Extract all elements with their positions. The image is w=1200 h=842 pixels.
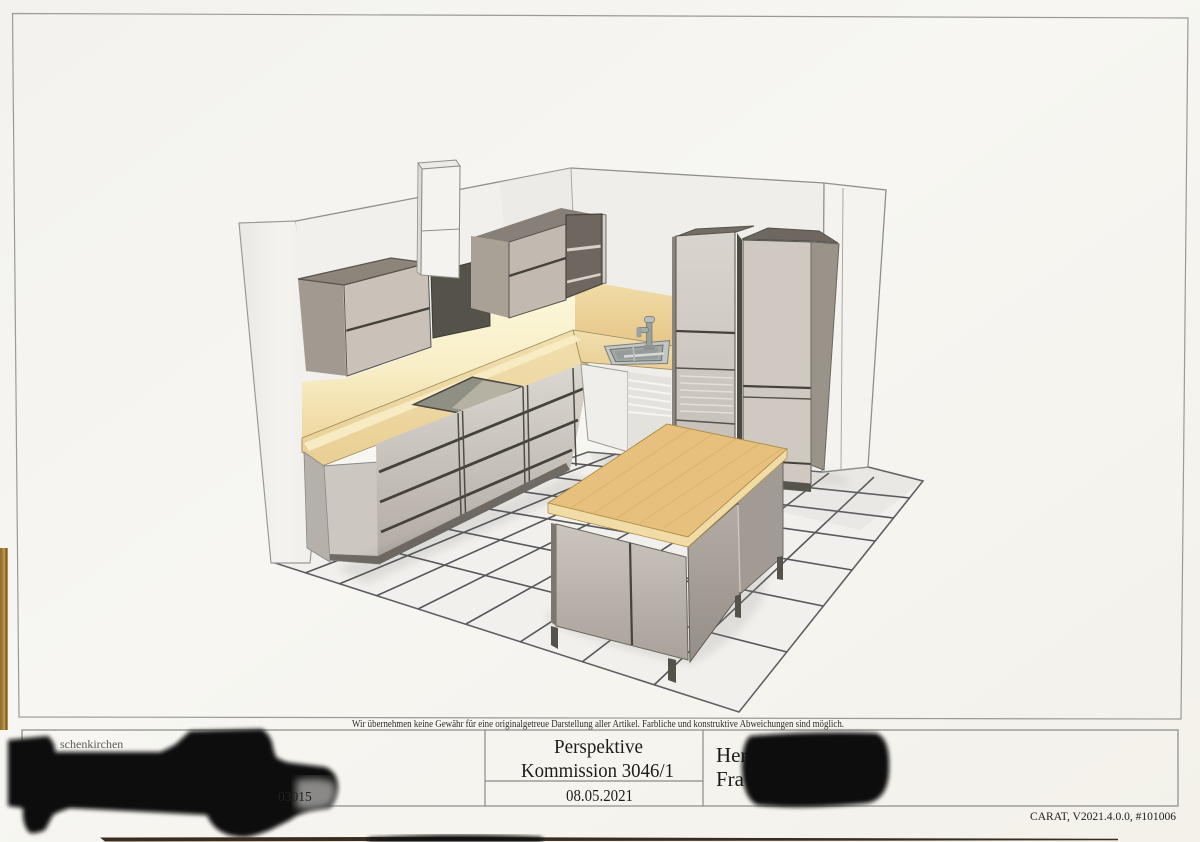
svg-text:Fra: Fra [716, 767, 745, 791]
svg-text:schenkirchen: schenkirchen [60, 737, 123, 751]
svg-text:08.05.2021: 08.05.2021 [566, 786, 633, 805]
svg-text:Kommission 3046/1: Kommission 3046/1 [521, 760, 674, 782]
svg-text:Wir übernehmen keine Gewähr fü: Wir übernehmen keine Gewähr für eine ori… [352, 718, 844, 730]
svg-text:Perspektive: Perspektive [554, 736, 643, 758]
svg-text:CARAT, V2021.4.0.0, #101006: CARAT, V2021.4.0.0, #101006 [1030, 811, 1176, 823]
svg-text:03015: 03015 [278, 789, 312, 804]
